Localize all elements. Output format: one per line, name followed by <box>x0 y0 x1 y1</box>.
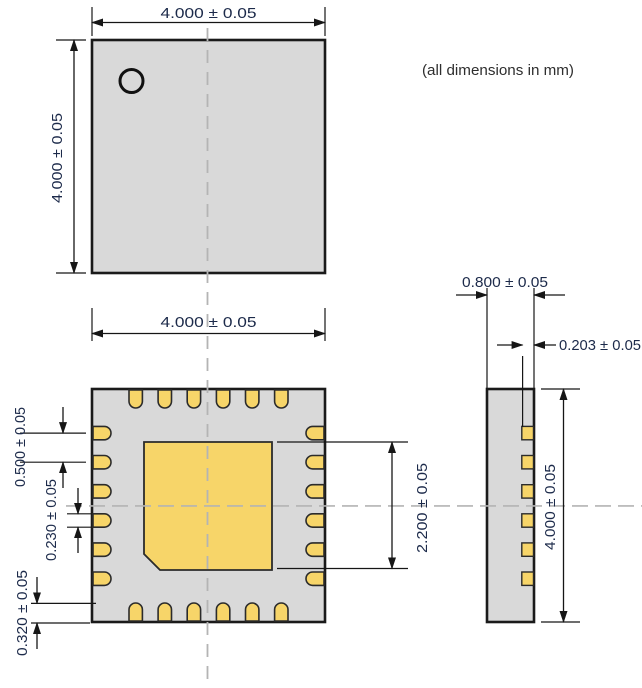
pin-pad-right <box>306 572 324 585</box>
drawing-canvas: 4.000 ± 0.05 4.000 ± 0.05 (all dimension… <box>0 0 642 688</box>
dim-pad-length <box>31 577 96 649</box>
side-pin-pad <box>522 456 534 469</box>
pin-pad-right <box>306 485 324 498</box>
pin-pad-bottom <box>216 603 229 621</box>
pin-pad-top <box>158 390 171 408</box>
side-pin-pad <box>522 485 534 498</box>
pin-pad-left <box>93 456 111 469</box>
side-height-label: 4.000 ± 0.05 <box>542 464 559 550</box>
center-pad-size-label: 2.200 ± 0.05 <box>414 463 431 553</box>
pin-pad-left <box>93 485 111 498</box>
pad-width-label: 0.230 ± 0.05 <box>43 479 60 561</box>
pin-pad-bottom <box>187 603 200 621</box>
dim-pad-pitch <box>20 407 86 488</box>
bottom-view-width-label: 4.000 ± 0.05 <box>161 314 257 331</box>
side-thickness-label: 0.800 ± 0.05 <box>462 274 548 291</box>
dim-side-thickness <box>456 288 565 388</box>
dim-pad-width <box>67 488 91 553</box>
pin-pad-top <box>246 390 259 408</box>
pad-pitch-label: 0.500 ± 0.05 <box>12 407 29 487</box>
pin-pad-right <box>306 514 324 527</box>
pin-pad-left <box>93 426 111 439</box>
pin-pad-right <box>306 426 324 439</box>
top-view-width-label: 4.000 ± 0.05 <box>161 5 257 22</box>
top-view <box>92 40 325 273</box>
side-pin-pad <box>522 572 534 585</box>
pin-pad-bottom <box>158 603 171 621</box>
units-note: (all dimensions in mm) <box>422 62 574 79</box>
top-view-body <box>92 40 325 273</box>
pin-pad-right <box>306 456 324 469</box>
pin-pad-left <box>93 572 111 585</box>
qfn-package-drawing: 4.000 ± 0.05 4.000 ± 0.05 (all dimension… <box>0 0 642 688</box>
pin-pad-left <box>93 543 111 556</box>
pin-pad-right <box>306 543 324 556</box>
pin-pad-bottom <box>246 603 259 621</box>
side-pin-pad <box>522 543 534 556</box>
top-view-height-label: 4.000 ± 0.05 <box>49 113 66 203</box>
pin-pad-top <box>216 390 229 408</box>
pin-pad-top <box>129 390 142 408</box>
side-pin-pad <box>522 426 534 439</box>
pin-pad-bottom <box>275 603 288 621</box>
pin-pad-top <box>275 390 288 408</box>
lead-thickness-label: 0.203 ± 0.05 <box>559 337 641 354</box>
pin-pad-bottom <box>129 603 142 621</box>
pin-pad-left <box>93 514 111 527</box>
pin-pad-top <box>187 390 200 408</box>
pad-length-label: 0.320 ± 0.05 <box>14 570 31 656</box>
side-pin-pad <box>522 514 534 527</box>
